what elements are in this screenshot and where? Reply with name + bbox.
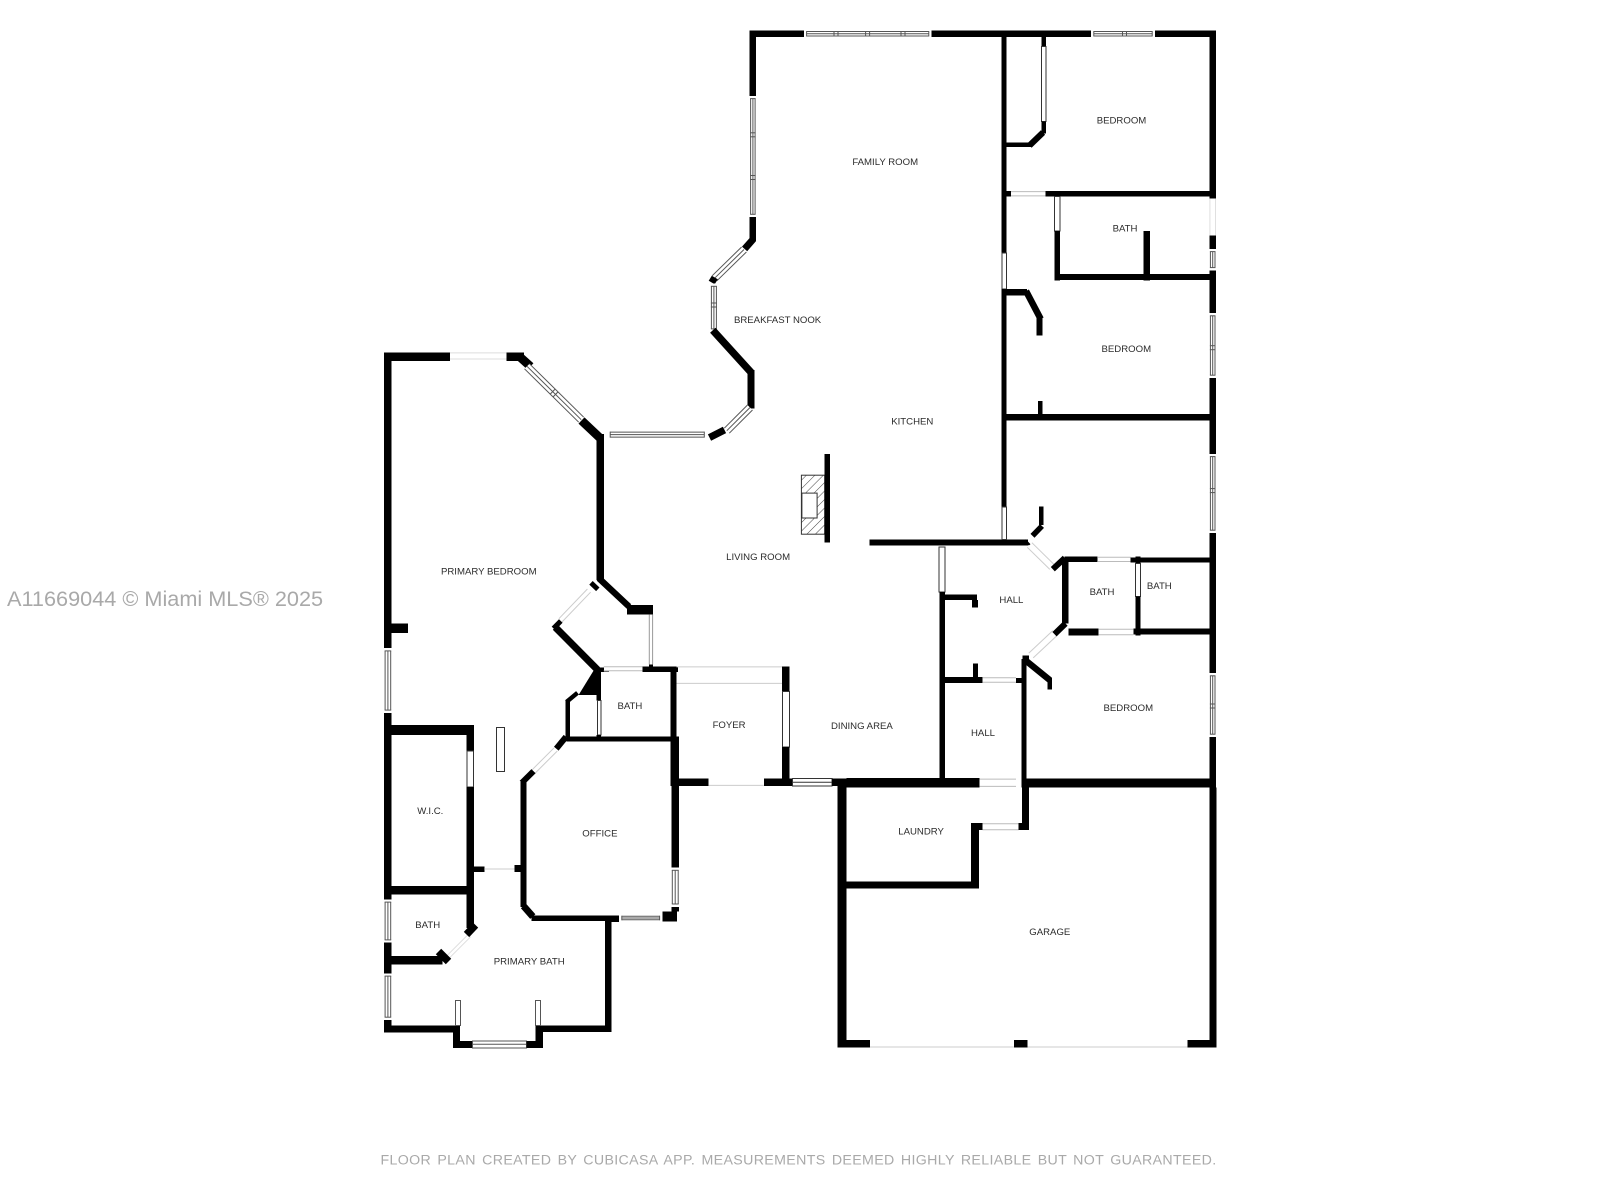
svg-text:BATH: BATH [617, 701, 642, 712]
svg-text:PRIMARY BATH: PRIMARY BATH [494, 957, 565, 968]
svg-text:A11669044 © Miami MLS® 2025: A11669044 © Miami MLS® 2025 [7, 586, 323, 611]
svg-text:BATH: BATH [1147, 581, 1172, 592]
svg-text:HALL: HALL [999, 595, 1024, 606]
svg-text:FAMILY ROOM: FAMILY ROOM [852, 157, 918, 168]
svg-text:GARAGE: GARAGE [1029, 927, 1070, 938]
svg-text:KITCHEN: KITCHEN [891, 417, 933, 428]
svg-text:W.I.C.: W.I.C. [417, 806, 443, 817]
svg-text:BATH: BATH [415, 920, 440, 931]
svg-text:BATH: BATH [1113, 223, 1138, 234]
svg-text:BATH: BATH [1090, 587, 1115, 598]
svg-text:FLOOR PLAN CREATED BY CUBICASA: FLOOR PLAN CREATED BY CUBICASA APP. MEAS… [380, 1153, 1216, 1169]
svg-text:BEDROOM: BEDROOM [1102, 344, 1152, 355]
svg-text:HALL: HALL [971, 728, 996, 739]
svg-text:DINING AREA: DINING AREA [831, 721, 893, 732]
svg-text:BEDROOM: BEDROOM [1104, 703, 1154, 714]
svg-text:OFFICE: OFFICE [582, 829, 617, 840]
svg-text:LIVING ROOM: LIVING ROOM [726, 552, 790, 563]
svg-text:BREAKFAST NOOK: BREAKFAST NOOK [734, 315, 822, 326]
svg-text:PRIMARY BEDROOM: PRIMARY BEDROOM [441, 566, 537, 577]
svg-text:LAUNDRY: LAUNDRY [898, 827, 944, 838]
svg-text:BEDROOM: BEDROOM [1097, 116, 1147, 127]
svg-text:FOYER: FOYER [713, 720, 746, 731]
